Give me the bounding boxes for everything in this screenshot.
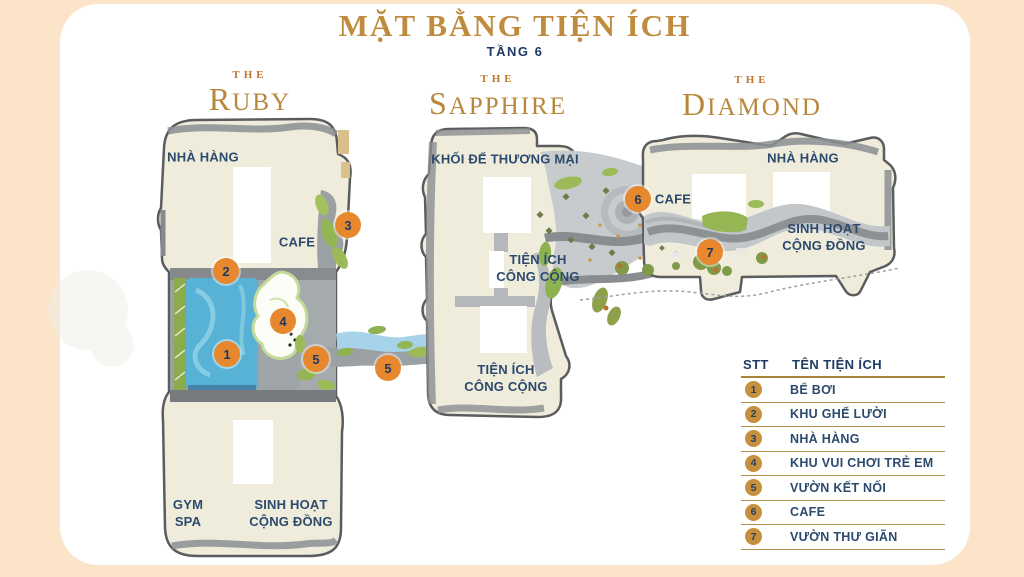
legend-row: 5 VƯỜN KẾT NỐI [741, 476, 945, 501]
page-subtitle: TẦNG 6 [60, 44, 970, 59]
tower-prefix: THE [209, 70, 291, 81]
legend-num-badge: 6 [745, 504, 762, 521]
plan-label-restaurant-diamond: NHÀ HÀNG [767, 151, 839, 168]
legend-num-badge: 3 [745, 430, 762, 447]
legend-row-name: BỂ BƠI [790, 383, 836, 397]
tower-prefix: THE [429, 74, 567, 85]
plan-label-cafe-ruby: CAFE [279, 235, 315, 252]
plan-label-commercial-podium: KHỐI ĐẾ THƯƠNG MẠI [431, 152, 579, 169]
map-marker-2-lounge: 2 [213, 258, 239, 284]
tower-title-ruby: THE RUBY [209, 70, 291, 115]
legend-col-stt: STT [741, 357, 792, 372]
legend-row-name: NHÀ HÀNG [790, 432, 860, 446]
legend-row-name: KHU VUI CHƠI TRẺ EM [790, 456, 933, 470]
plan-label-public-utility-lower: TIỆN ÍCH CÔNG CỘNG [464, 362, 547, 396]
legend-num-badge: 7 [745, 528, 762, 545]
map-marker-4-playground: 4 [270, 308, 296, 334]
legend-num-badge: 2 [745, 406, 762, 423]
legend-row: 3 NHÀ HÀNG [741, 427, 945, 452]
legend-num-badge: 5 [745, 479, 762, 496]
plan-label-community-diamond: SINH HOẠT CỘNG ĐỒNG [782, 221, 865, 255]
legend-num-badge: 1 [745, 381, 762, 398]
legend-row-name: KHU GHẾ LƯỜI [790, 407, 887, 421]
map-marker-3-restaurant: 3 [335, 212, 361, 238]
page-title: MẶT BẰNG TIỆN ÍCH [60, 8, 970, 44]
map-marker-5-garden-a: 5 [303, 346, 329, 372]
plan-label-community-ruby: SINH HOẠT CỘNG ĐỒNG [249, 497, 332, 531]
plan-label-public-utility-upper: TIỆN ÍCH CÔNG CỘNG [496, 252, 579, 286]
tower-title-diamond: THE DIAMOND [682, 75, 822, 120]
legend-row: 6 CAFE [741, 501, 945, 526]
amenity-legend-table: STT TÊN TIỆN ÍCH 1 BỂ BƠI 2 KHU GHẾ LƯỜI… [741, 350, 945, 550]
plan-label-cafe-diamond: CAFE [655, 192, 691, 209]
tower-title-sapphire: THE SAPPHIRE [429, 74, 567, 119]
legend-row-name: CAFE [790, 505, 825, 519]
tower-name: DIAMOND [682, 88, 822, 120]
map-marker-7-relax-garden: 7 [697, 239, 723, 265]
legend-col-name: TÊN TIỆN ÍCH [792, 357, 882, 372]
legend-row: 7 VƯỜN THƯ GIÃN [741, 525, 945, 550]
swimming-pool-shape [174, 278, 258, 390]
legend-row-name: VƯỜN KẾT NỐI [790, 481, 886, 495]
plan-label-restaurant-ruby: NHÀ HÀNG [167, 150, 239, 167]
map-marker-5-garden-b: 5 [375, 355, 401, 381]
tower-name: SAPPHIRE [429, 87, 567, 119]
map-marker-1-pool: 1 [214, 341, 240, 367]
tower-prefix: THE [682, 75, 822, 86]
watermark [48, 270, 134, 367]
legend-num-badge: 4 [745, 455, 762, 472]
plan-label-gym-spa: GYM SPA [173, 497, 203, 531]
legend-row-name: VƯỜN THƯ GIÃN [790, 530, 898, 544]
tower-name: RUBY [209, 83, 291, 115]
map-marker-6-cafe: 6 [625, 186, 651, 212]
legend-row: 1 BỂ BƠI [741, 378, 945, 403]
legend-row: 2 KHU GHẾ LƯỜI [741, 403, 945, 428]
legend-header: STT TÊN TIỆN ÍCH [741, 350, 945, 378]
legend-row: 4 KHU VUI CHƠI TRẺ EM [741, 452, 945, 477]
